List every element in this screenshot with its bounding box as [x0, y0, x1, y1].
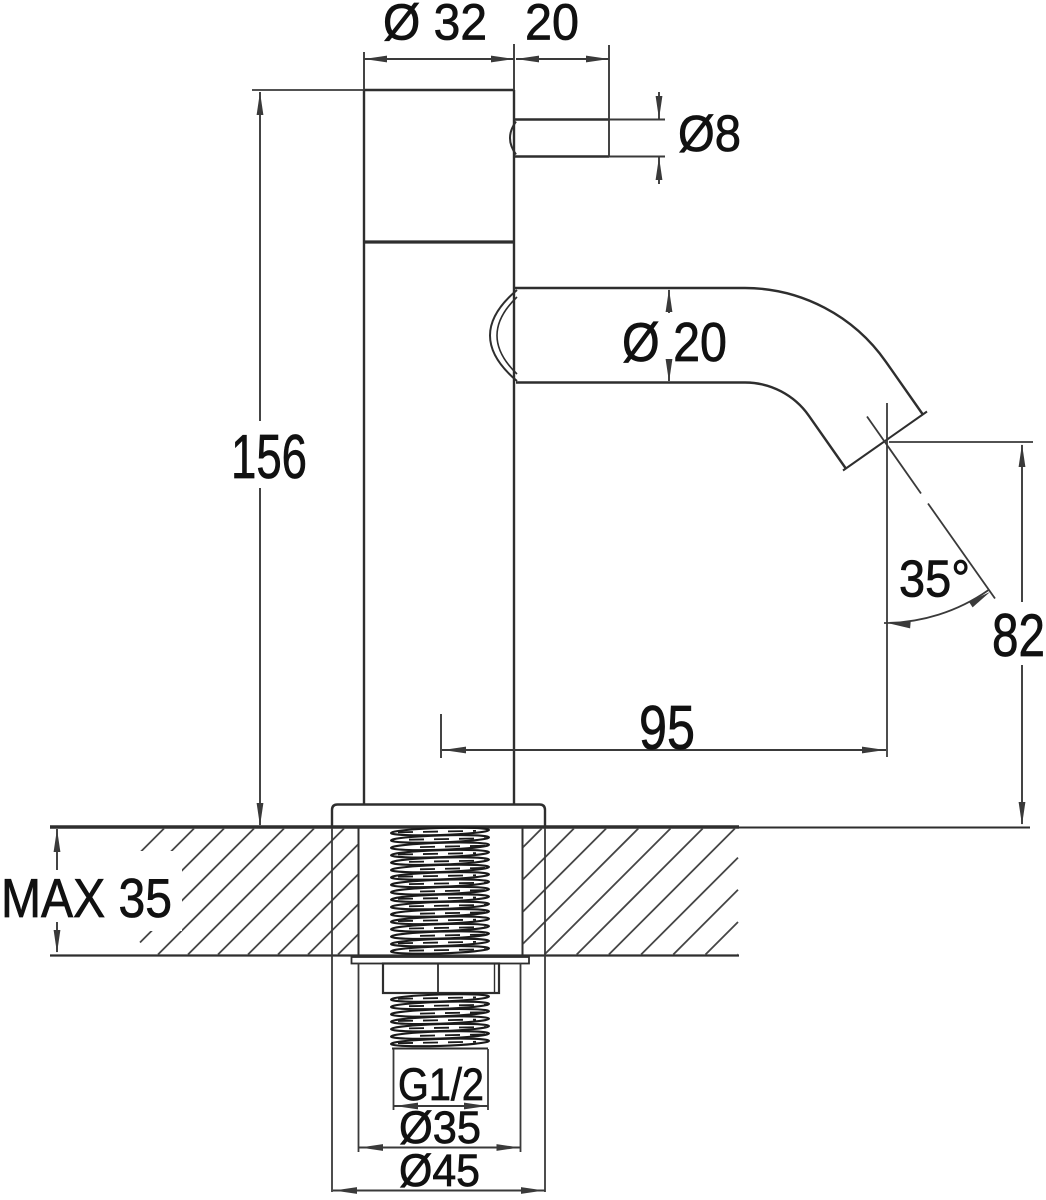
svg-text:82: 82 [992, 602, 1045, 669]
svg-text:156: 156 [231, 423, 307, 492]
svg-text:35°: 35° [899, 551, 970, 609]
svg-text:95: 95 [639, 694, 695, 763]
svg-text:20: 20 [525, 0, 579, 51]
svg-text:Ø 32: Ø 32 [383, 0, 487, 51]
svg-text:MAX 35: MAX 35 [1, 867, 172, 929]
svg-text:Ø8: Ø8 [678, 105, 741, 162]
svg-text:Ø45: Ø45 [399, 1145, 480, 1196]
svg-text:Ø 20: Ø 20 [622, 311, 727, 373]
